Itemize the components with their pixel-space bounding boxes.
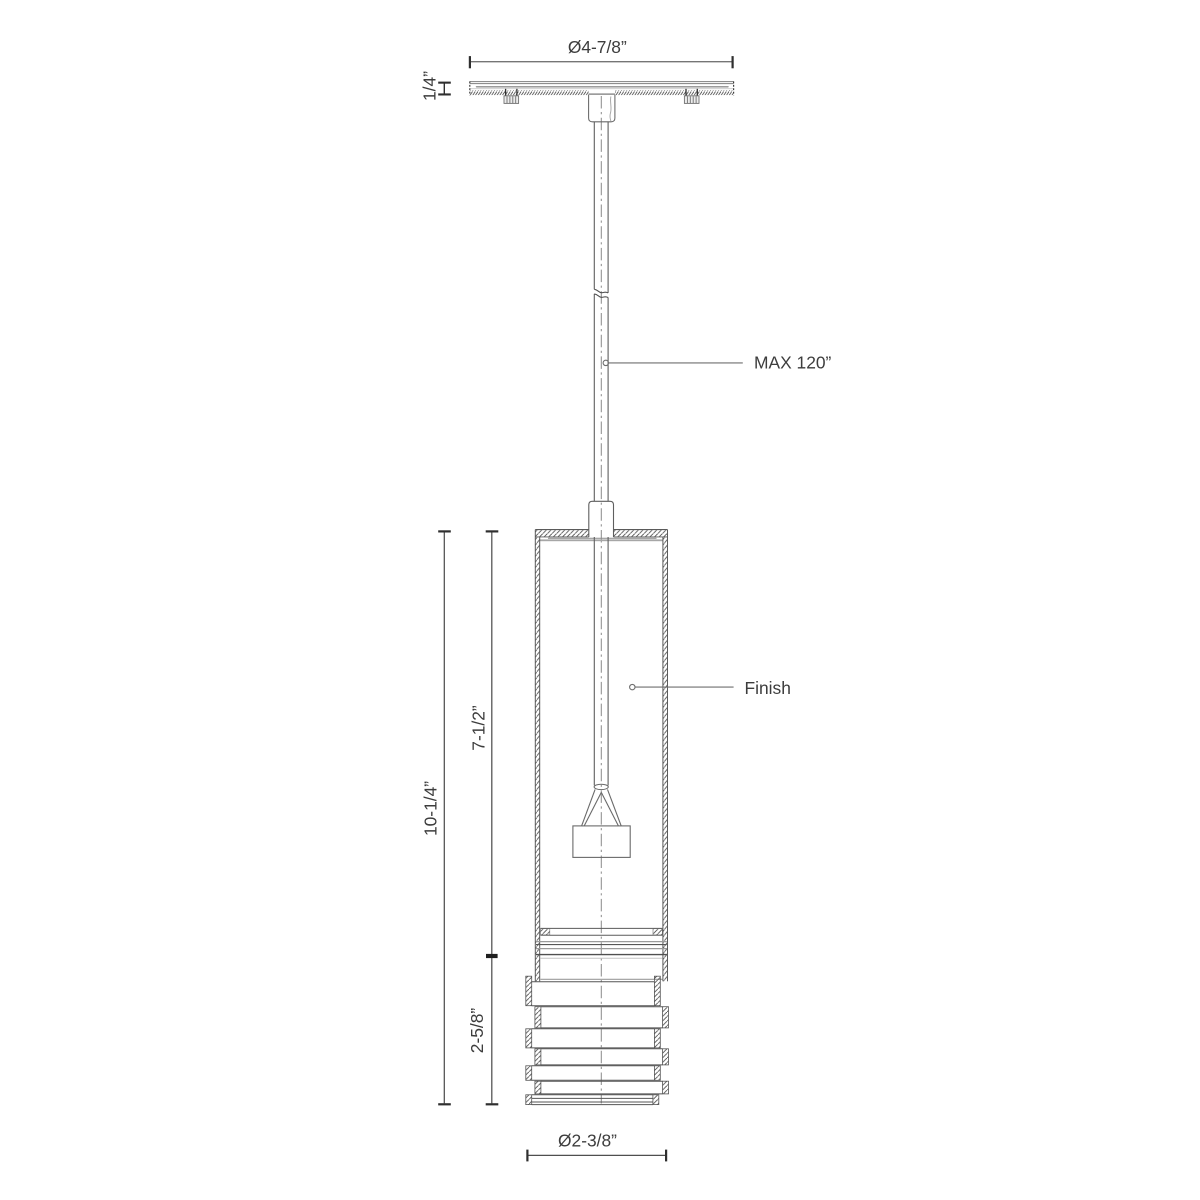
- svg-text:2-5/8”: 2-5/8”: [467, 1008, 487, 1054]
- svg-text:1/4”: 1/4”: [420, 71, 440, 101]
- svg-text:Ø2-3/8”: Ø2-3/8”: [558, 1131, 617, 1151]
- svg-text:MAX 120”: MAX 120”: [754, 352, 832, 372]
- svg-text:7-1/2”: 7-1/2”: [469, 705, 489, 751]
- svg-text:10-1/4”: 10-1/4”: [421, 781, 441, 836]
- svg-text:Finish: Finish: [745, 678, 791, 698]
- svg-text:Ø4-7/8”: Ø4-7/8”: [568, 37, 627, 57]
